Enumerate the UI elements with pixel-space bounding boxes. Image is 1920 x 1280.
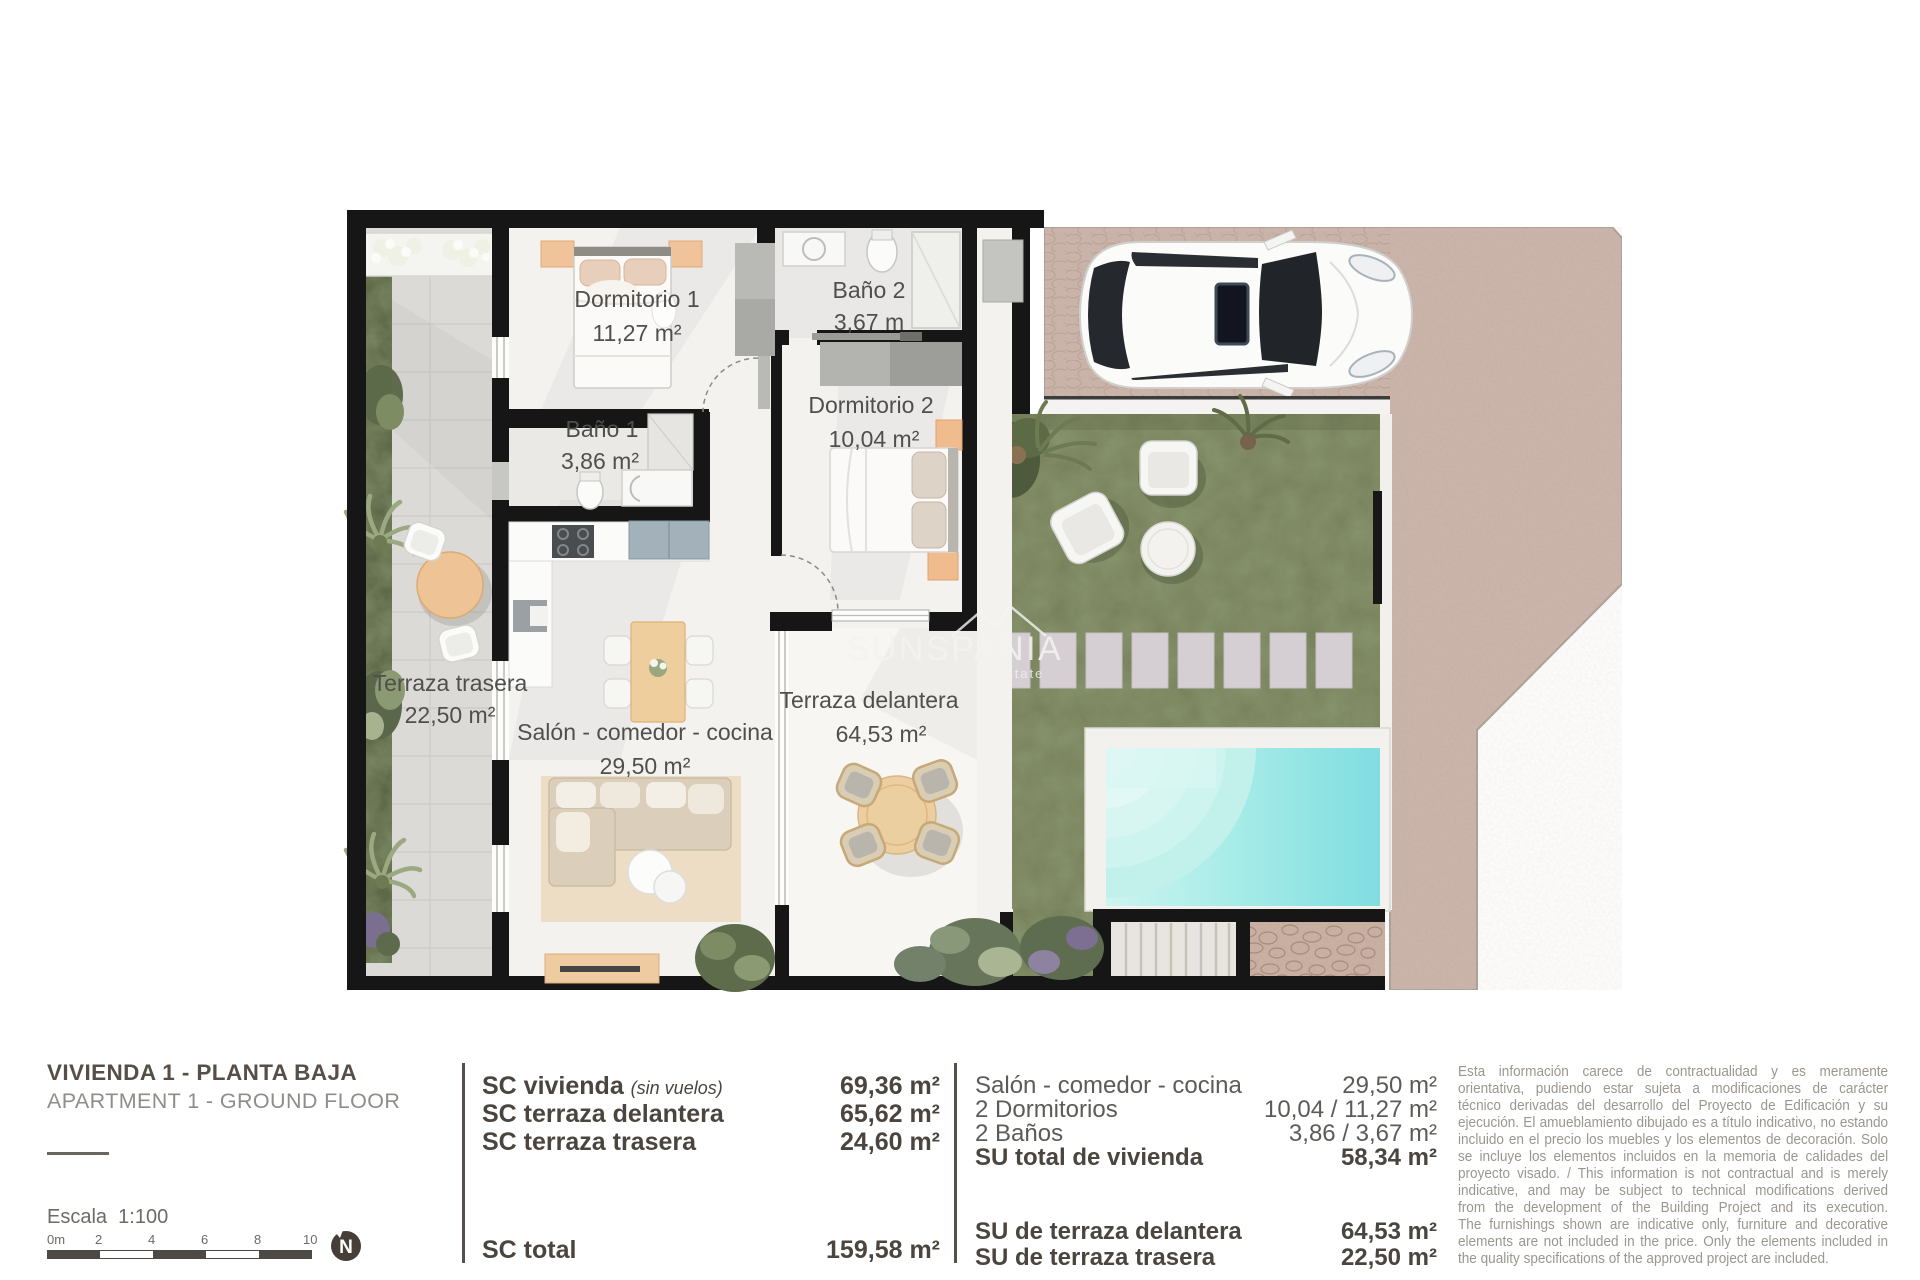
- svg-text:22,50 m²: 22,50 m²: [405, 702, 496, 728]
- svg-text:29,50 m²: 29,50 m²: [600, 753, 691, 779]
- svg-text:Salón - comedor - cocina: Salón - comedor - cocina: [517, 719, 773, 745]
- svg-text:3,67 m: 3,67 m: [834, 309, 904, 335]
- svg-text:64,53 m²: 64,53 m²: [836, 721, 927, 747]
- svg-text:Terraza trasera: Terraza trasera: [373, 670, 528, 696]
- svg-text:Terraza delantera: Terraza delantera: [780, 687, 959, 713]
- svg-text:11,27 m²: 11,27 m²: [592, 320, 681, 346]
- svg-text:SUNSPANIA: SUNSPANIA: [847, 630, 1063, 668]
- svg-text:Dormitorio 1: Dormitorio 1: [574, 286, 699, 312]
- svg-text:N: N: [339, 1237, 353, 1258]
- svg-text:Estate: Estate: [996, 666, 1045, 681]
- svg-text:10,04 m²: 10,04 m²: [829, 426, 920, 452]
- svg-text:Dormitorio 2: Dormitorio 2: [808, 392, 933, 418]
- svg-text:Baño 1: Baño 1: [566, 416, 639, 442]
- svg-text:Baño 2: Baño 2: [833, 277, 906, 303]
- svg-text:3,86 m²: 3,86 m²: [561, 448, 639, 474]
